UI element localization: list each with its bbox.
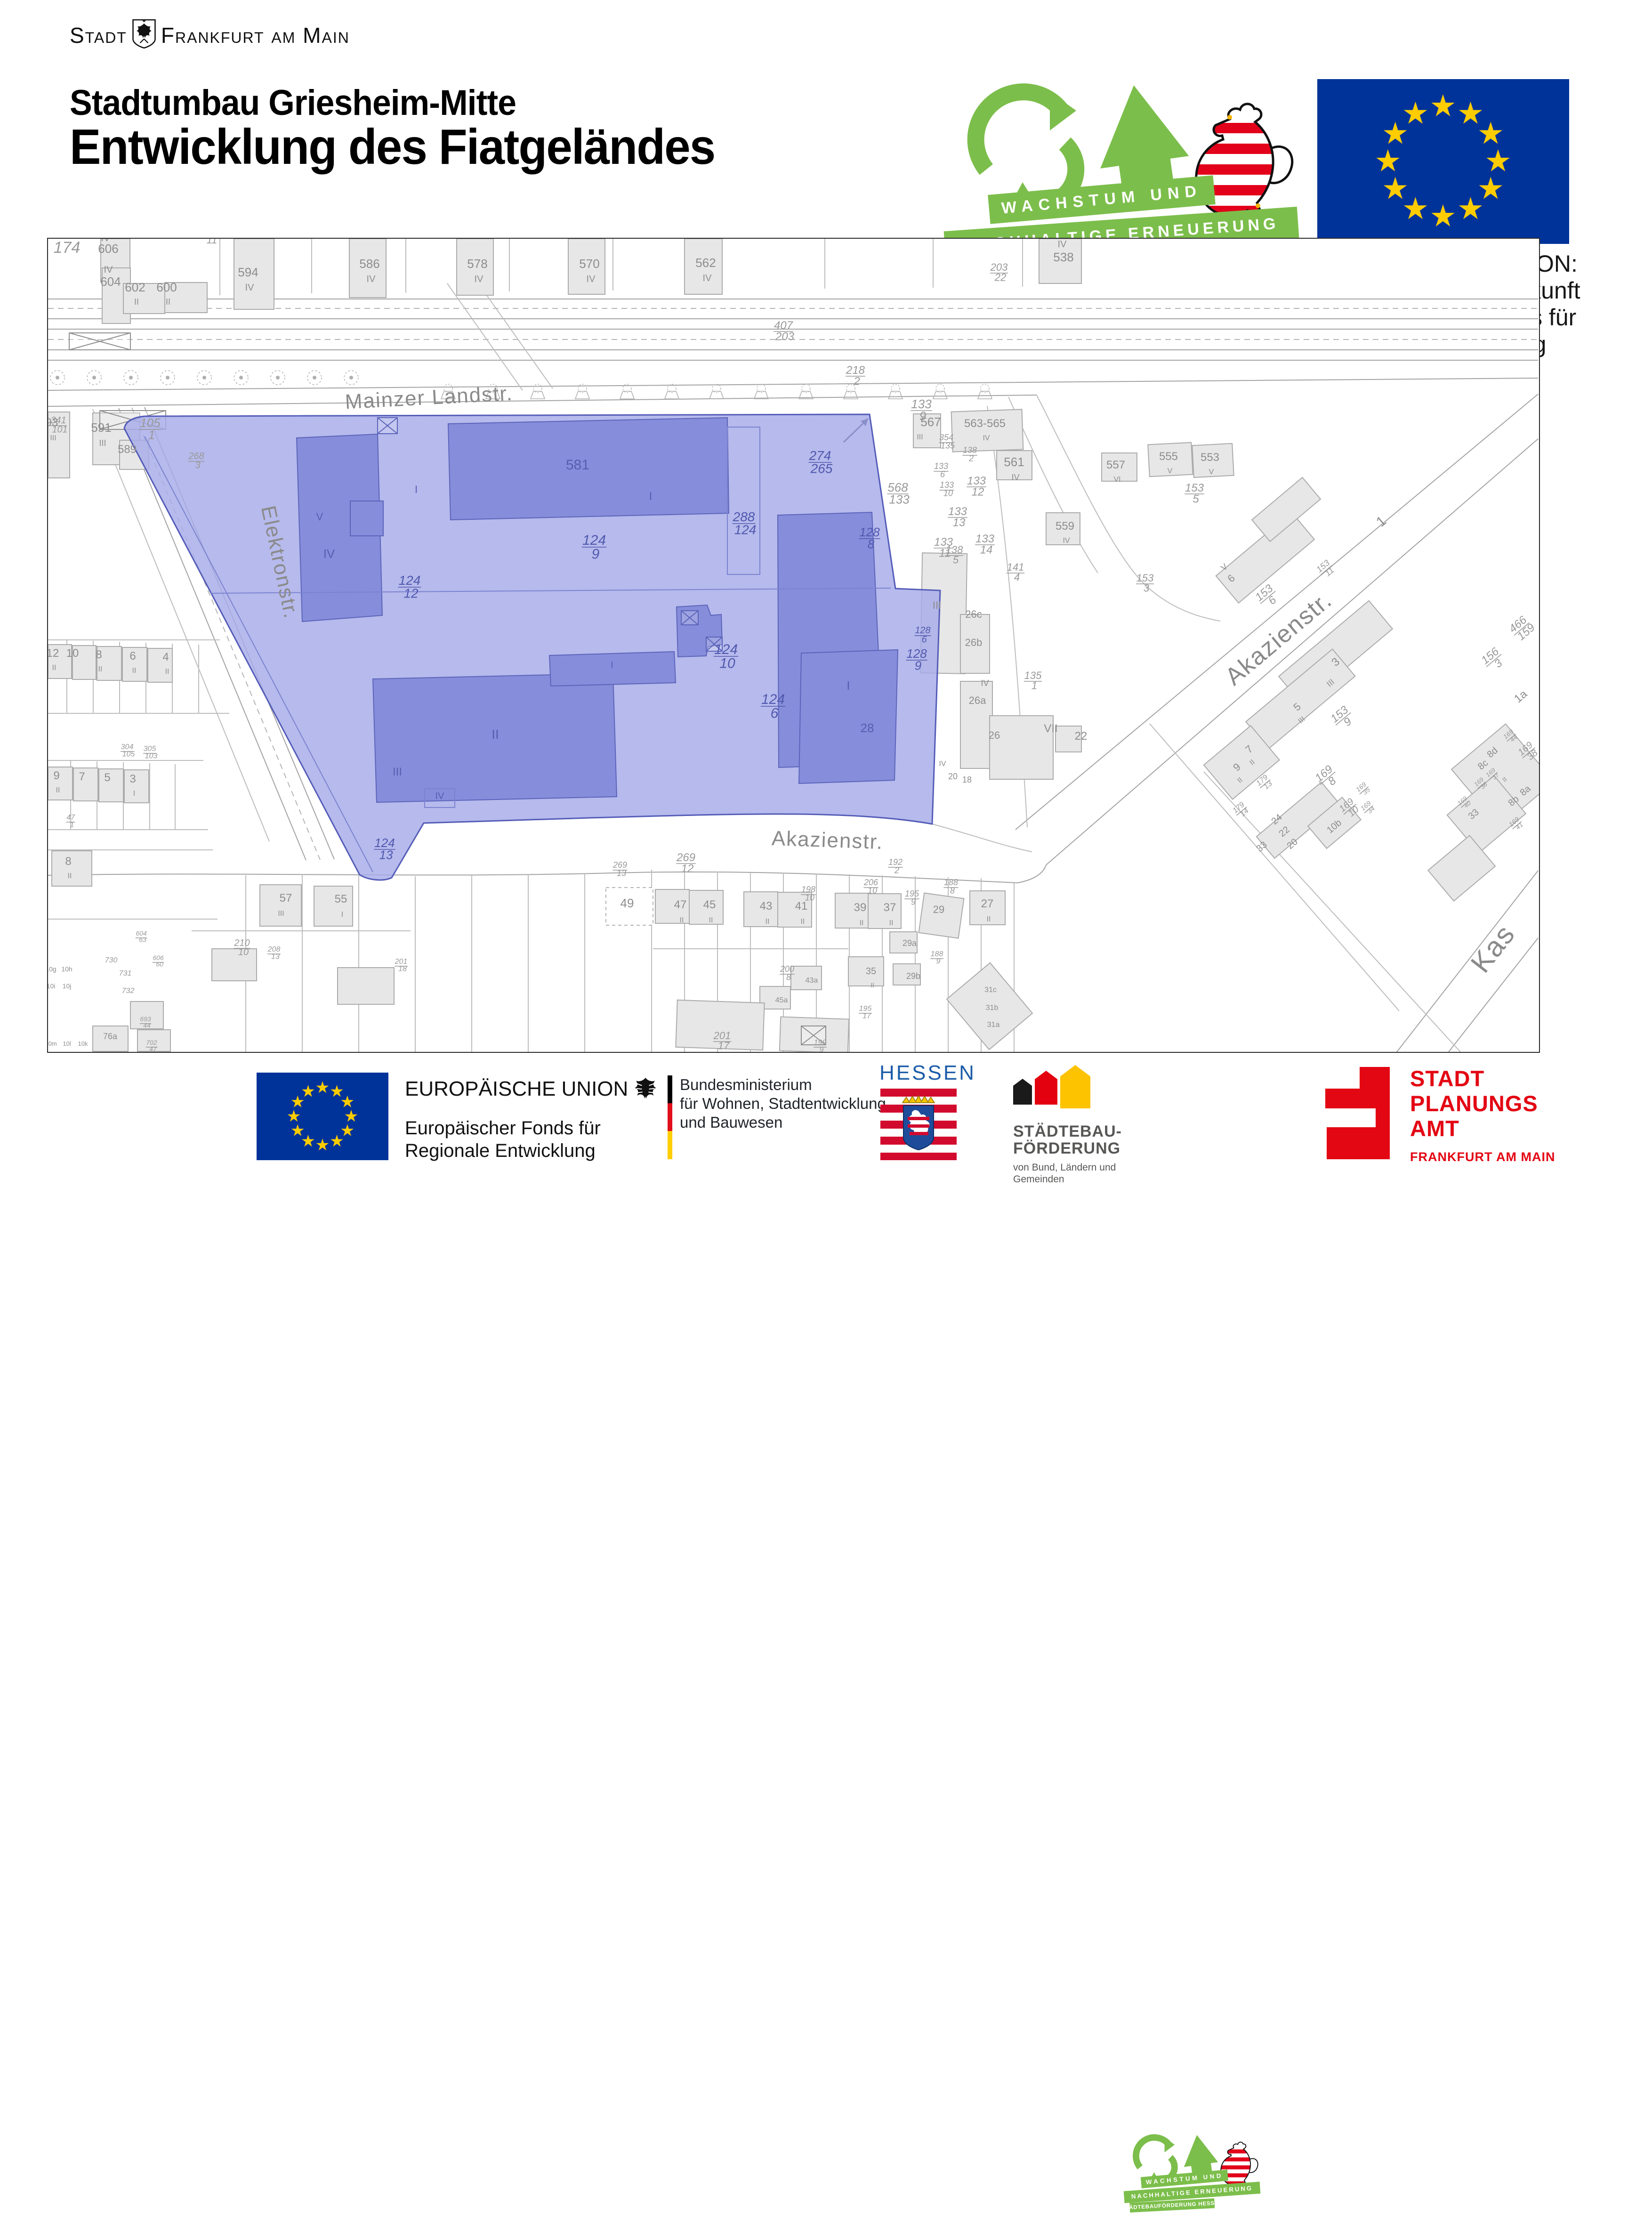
map-label: 591: [91, 420, 111, 435]
manhole-dot: [239, 376, 243, 380]
footer-eu-text: EUROPÄISCHE UNION Europäischer Fonds für…: [405, 1077, 628, 1162]
map-label: II: [870, 981, 874, 989]
map-label: 47: [66, 814, 75, 822]
map-label: 13: [953, 517, 966, 529]
page-title: Entwicklung des Fiatgeländes: [70, 119, 715, 176]
cadastral-map-svg: Mainzer Landstr.Elektronstr.Akazienstr.A…: [48, 239, 1539, 1052]
staedtebau-houses-icon: [1013, 1065, 1093, 1117]
map-label: 135: [941, 441, 955, 451]
map-label: 9: [911, 897, 916, 907]
map-label: 1: [1031, 680, 1037, 692]
map-label: 12: [48, 647, 59, 660]
map-label: 10m: [48, 1040, 57, 1047]
map-label: II: [52, 664, 56, 672]
map-label: 2: [853, 375, 860, 388]
street-name-label: Mainzer Landstr.: [345, 382, 514, 414]
map-label: II: [165, 668, 169, 676]
sponsor-footer: EUROPÄISCHE UNION Europäischer Fonds für…: [0, 1059, 1652, 1168]
map-label: 8: [786, 973, 791, 982]
map-label: 47: [674, 898, 687, 911]
map-label: 1: [1373, 513, 1389, 530]
eu-star-icon: [345, 1110, 358, 1122]
eu-star-icon: [302, 1085, 314, 1097]
map-label: 5: [104, 771, 110, 784]
fiat-site-overlay: [124, 414, 940, 880]
map-label: IV: [939, 760, 946, 768]
bundesadler-icon: [631, 1075, 660, 1103]
footer-eu-logo: [257, 1073, 388, 1160]
map-label: 13: [379, 848, 393, 862]
manhole-dot: [129, 376, 133, 380]
spa-city-line: FRANKFURT AM MAIN: [1410, 1150, 1555, 1164]
map-label: 9: [1341, 715, 1354, 729]
eu-star-icon: [1479, 122, 1503, 144]
map-label: IV: [367, 274, 376, 284]
map-label: 124: [582, 533, 606, 548]
eu-star-icon: [1459, 197, 1482, 219]
eu-flag: [1317, 79, 1569, 244]
map-label: 3: [195, 460, 200, 471]
map-label: 288: [733, 509, 755, 524]
map-label: IV: [983, 434, 990, 442]
eu-star-icon: [1404, 102, 1427, 124]
map-label: 4: [1014, 572, 1020, 583]
map-label: 9: [53, 769, 59, 782]
map-label: 8: [65, 855, 71, 868]
map-label: 43: [760, 900, 773, 913]
map-label: 6: [1266, 593, 1279, 607]
map-label: 76a: [103, 1032, 118, 1041]
map-label: 49: [621, 896, 634, 910]
bmwsb-text: Bundesministerium für Wohnen, Stadtentwi…: [680, 1075, 886, 1159]
map-label: IV: [245, 283, 255, 293]
map-label: 12: [681, 863, 694, 875]
map-label: III: [933, 599, 941, 611]
map-label: 55: [335, 893, 347, 905]
hessen-crest-icon: [880, 1089, 957, 1160]
map-label: 195: [859, 1005, 872, 1013]
map-label: 44: [143, 1022, 151, 1029]
map-label: 10: [66, 647, 79, 660]
map-label: 581: [566, 457, 589, 473]
map-label: II: [987, 915, 991, 923]
map-label: 3: [129, 773, 136, 785]
eu-star-icon: [341, 1124, 354, 1136]
map-label: V: [1209, 468, 1214, 476]
map-label: 602: [125, 280, 145, 294]
german-flag-bar-icon: [668, 1075, 672, 1159]
map-label: 203: [775, 331, 795, 343]
map-label: IV: [104, 265, 113, 275]
map-label: 1: [148, 428, 155, 442]
map-label: 604: [100, 275, 121, 289]
map-label: IV: [981, 678, 989, 688]
map-label: 174: [54, 239, 81, 257]
map-label: III: [393, 766, 402, 778]
map-label: 561: [1004, 455, 1024, 469]
map-label: 13: [617, 869, 626, 878]
map-label: 103: [145, 752, 158, 760]
map-label: II: [98, 665, 103, 673]
footer-staedtebau-logo: STÄDTEBAU- FÖRDERUNG von Bund, Ländern u…: [1013, 1065, 1122, 1185]
manhole-dot: [202, 376, 206, 380]
map-label: 10: [238, 947, 249, 958]
map-label: 553: [1201, 451, 1219, 464]
map-label: I: [133, 790, 135, 798]
map-label: 13: [271, 953, 280, 961]
map-label: 201: [395, 958, 408, 966]
map-label: 26: [989, 729, 1000, 741]
map-label: 29a: [903, 938, 917, 948]
map-label: 731: [119, 969, 132, 977]
map-label: 124: [734, 522, 757, 537]
map-label: 10: [719, 655, 735, 671]
eu-star-icon: [1384, 122, 1407, 144]
footer-bmwsb-logo: Bundesministerium für Wohnen, Stadtentwi…: [631, 1075, 886, 1159]
map-label: 8: [1326, 774, 1339, 788]
map-label: II: [134, 297, 139, 307]
map-label: IV: [435, 791, 445, 801]
map-label: IV: [587, 274, 596, 284]
map-label: 2: [968, 454, 974, 463]
eu-star-icon: [1376, 149, 1399, 171]
map-label: 538: [1053, 250, 1073, 264]
map-label: 730: [105, 956, 118, 964]
manhole-dot: [56, 376, 59, 380]
eu-star-icon: [291, 1124, 304, 1136]
map-label: IV: [703, 273, 712, 283]
map-label: 555: [1159, 450, 1178, 463]
map-label: 29: [933, 904, 944, 915]
map-label: IV: [1058, 239, 1067, 250]
map-label: 1a: [1512, 687, 1530, 705]
map-label: 5: [953, 554, 959, 566]
eu-star-icon: [316, 1081, 329, 1093]
map-label: II: [68, 872, 72, 880]
map-label: 10k: [78, 1040, 88, 1047]
map-label: 559: [1056, 520, 1074, 533]
map-label: 567: [920, 415, 941, 429]
eu-star-icon: [1431, 94, 1454, 116]
map-label: 589: [118, 443, 137, 456]
map-label: 14: [980, 544, 993, 557]
eu-star-icon: [291, 1096, 304, 1107]
eu-flag-small: [257, 1073, 388, 1160]
map-label: 10i: [48, 982, 55, 990]
map-label: 12: [972, 486, 984, 499]
map-label: 732: [122, 987, 135, 995]
map-label: 2: [894, 866, 899, 875]
map-label: II: [166, 297, 170, 307]
map-label: 4: [162, 651, 169, 663]
map-label: V: [1168, 467, 1173, 475]
map-label: 41: [795, 900, 808, 913]
map-label: 124: [714, 642, 738, 657]
eu-star-icon: [1431, 204, 1454, 226]
map-label: 188: [931, 950, 943, 958]
map-label: V: [316, 511, 323, 523]
map-label: IV: [475, 274, 484, 284]
map-label: 265: [810, 461, 833, 476]
map-label: 27: [981, 897, 994, 910]
map-label: 6: [771, 705, 779, 721]
map-label: I: [846, 678, 850, 693]
map-label: I: [341, 911, 343, 919]
map-label: 93: [48, 416, 58, 429]
street-name-label: Kas: [1465, 919, 1521, 978]
map-label: IV: [323, 547, 335, 561]
spa-wordmark: STADT PLANUNGS AMT: [1410, 1066, 1538, 1141]
map-label: 26c: [965, 608, 982, 620]
map-label: II: [801, 918, 805, 926]
map-label: 9: [592, 546, 600, 562]
map-label: 8: [950, 886, 955, 896]
map-label: 10g: [48, 965, 56, 973]
map-label: 10h: [61, 965, 72, 973]
map-label: 10: [868, 886, 877, 896]
map-label: 31a: [987, 1021, 1000, 1029]
map-label: 37: [884, 901, 896, 914]
map-label: 304: [121, 743, 134, 751]
map-label: 578: [467, 257, 487, 271]
footer-spa-logo: [1325, 1067, 1391, 1162]
map-label: 29b: [906, 971, 920, 981]
manhole-dot: [92, 376, 96, 380]
map-label: 17: [718, 1040, 730, 1052]
map-label: 8: [868, 537, 875, 551]
city-brand: Stadt Frankfurt am Main: [70, 19, 350, 51]
map-label: 22: [994, 272, 1006, 283]
eu-star-icon: [330, 1085, 343, 1097]
map-label: 586: [359, 257, 379, 271]
site-building: [799, 650, 898, 783]
map-label: 9: [915, 658, 921, 672]
map-label: 5: [1193, 493, 1199, 506]
map-label: 305: [144, 745, 156, 753]
frankfurt-eagle-shield-icon: [132, 19, 156, 51]
spa-mark-icon: [1325, 1067, 1391, 1159]
street-name-label: Akazienstr.: [771, 827, 884, 854]
map-label: III: [50, 434, 56, 442]
map-label: 17: [862, 1012, 871, 1020]
map-label: III: [99, 438, 106, 448]
manhole-dot: [276, 376, 280, 380]
map-label: 12: [403, 586, 419, 600]
map-label: 45: [703, 898, 716, 911]
map-label: 26b: [965, 637, 983, 648]
map-label: 18: [962, 775, 972, 784]
map-label: 8: [96, 648, 102, 661]
brand-stadt: Stadt: [70, 23, 127, 48]
map-label: II: [766, 918, 770, 926]
map-label: IV: [1063, 537, 1070, 545]
map-label: II: [56, 786, 60, 794]
map-label: 6: [129, 650, 136, 662]
map-label: 562: [695, 256, 716, 270]
map-label: I: [415, 484, 418, 495]
eu-star-icon: [1459, 102, 1482, 124]
eu-star-icon: [1479, 177, 1503, 199]
map-label: 10j: [63, 982, 72, 990]
map-label: 124: [761, 692, 785, 707]
map-label: 124: [399, 573, 421, 588]
map-label: 606: [98, 242, 118, 256]
manhole-dot: [166, 376, 169, 380]
eu-star-icon: [341, 1096, 354, 1107]
map-label: VII: [1044, 722, 1057, 735]
footer-growth-logo: WACHSTUM UND NACHHALTIGE ERNEUERUNG STÄD…: [1123, 2132, 1261, 2212]
map-label: 60: [156, 961, 163, 968]
map-label: 6: [940, 470, 945, 479]
map-label: 594: [238, 265, 258, 279]
map-label: 11: [207, 239, 218, 246]
map-label: 133: [889, 492, 910, 506]
eu-star-icon: [330, 1135, 343, 1147]
map-label: III: [917, 433, 923, 441]
map-label: 557: [1106, 459, 1125, 471]
map-label: 63: [139, 936, 146, 944]
map-label: 39: [854, 901, 867, 914]
manhole-dot: [349, 376, 353, 380]
map-label: II: [492, 727, 499, 742]
map-label: 199: [814, 1039, 827, 1047]
map-label: 31b: [986, 1004, 999, 1012]
page-subtitle: Stadtumbau Griesheim-Mitte: [70, 82, 516, 123]
map-label: 10l: [63, 1040, 71, 1047]
map-label: II: [709, 916, 713, 924]
map-label: 570: [579, 257, 599, 271]
map-label: II: [889, 919, 894, 927]
map-label: IV: [1011, 473, 1019, 482]
map-label: 18: [398, 965, 407, 973]
map-label: 9: [936, 958, 941, 966]
cadastral-map: Mainzer Landstr.Elektronstr.Akazienstr.A…: [47, 238, 1540, 1053]
eu-star-icon: [1486, 149, 1509, 171]
map-label: I: [649, 490, 653, 503]
eu-star-icon: [288, 1110, 300, 1122]
hessen-wordmark: HESSEN: [879, 1061, 957, 1085]
eu-star-icon: [302, 1135, 314, 1147]
map-label: 105: [122, 751, 135, 759]
map-label: III: [278, 910, 284, 918]
map-label: 9: [820, 1046, 824, 1052]
map-label: 47: [149, 1045, 157, 1052]
map-label: II: [860, 919, 864, 927]
map-label: I: [611, 660, 613, 670]
map-label: 31c: [984, 986, 997, 994]
map-label: 28: [861, 721, 874, 735]
map-label: 45a: [775, 996, 788, 1004]
eu-star-icon: [1404, 197, 1427, 219]
map-label: 1: [70, 821, 74, 829]
map-label: 6: [921, 635, 927, 645]
eu-star-icon: [1384, 177, 1407, 199]
map-label: 7: [79, 770, 85, 783]
map-label: 274: [809, 448, 831, 463]
map-label: 3: [1492, 656, 1505, 670]
map-label: 10: [943, 489, 953, 498]
map-label: 3: [1144, 582, 1150, 594]
map-label: 208: [267, 945, 281, 953]
map-label: 22: [1075, 730, 1088, 743]
map-label: 20: [948, 772, 958, 781]
map-label: 57: [280, 892, 292, 905]
map-label: II: [132, 667, 137, 675]
brand-frankfurt: Frankfurt am Main: [161, 23, 350, 48]
map-label: 43a: [806, 977, 818, 985]
map-label: 563-565: [964, 417, 1006, 430]
map-label: VI: [1113, 476, 1120, 484]
map-label: 26a: [969, 695, 986, 706]
map-label: 600: [156, 280, 177, 294]
manhole-dot: [313, 376, 316, 380]
eu-star-icon: [316, 1139, 329, 1150]
map-label: II: [680, 916, 684, 924]
map-label: 35: [866, 966, 876, 977]
